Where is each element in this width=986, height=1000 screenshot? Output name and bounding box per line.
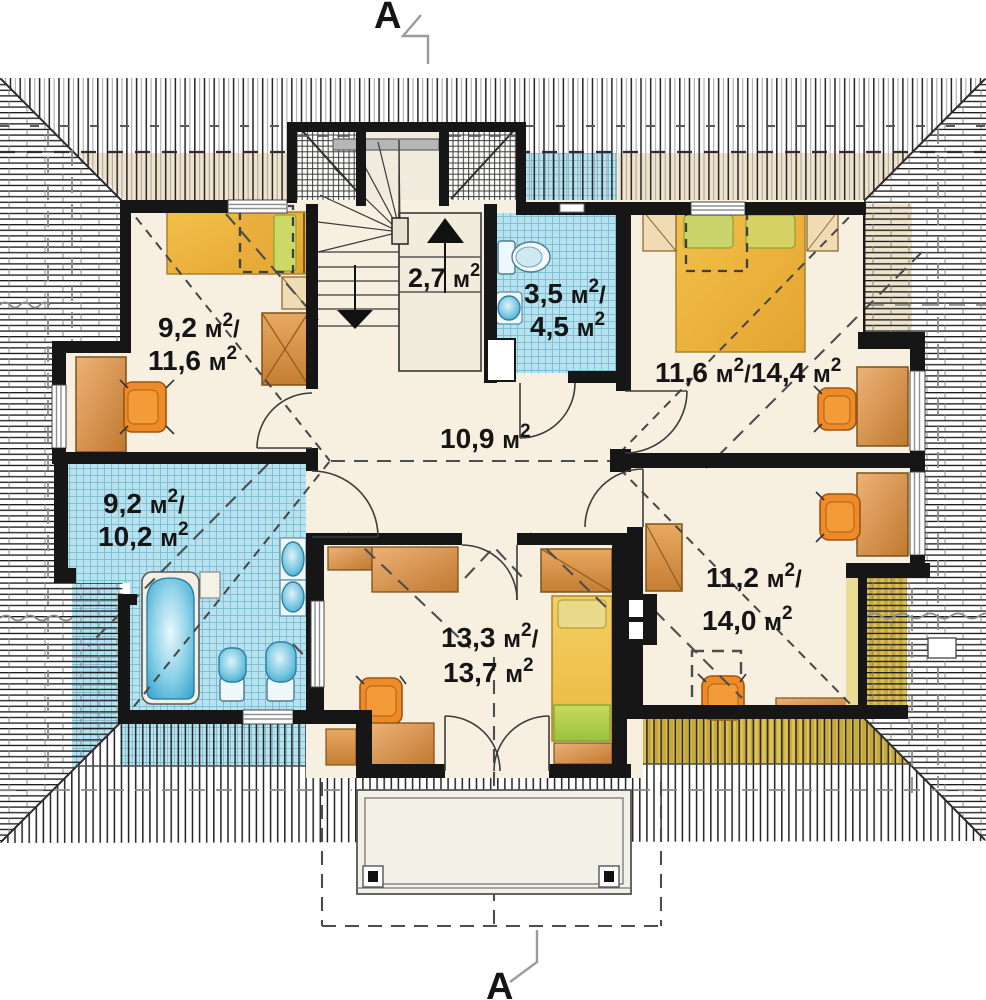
svg-text:4,5 м2: 4,5 м2	[530, 309, 605, 342]
svg-text:A: A	[374, 0, 401, 37]
svg-text:2,7 м2: 2,7 м2	[408, 260, 480, 293]
svg-text:A: A	[486, 966, 513, 1000]
